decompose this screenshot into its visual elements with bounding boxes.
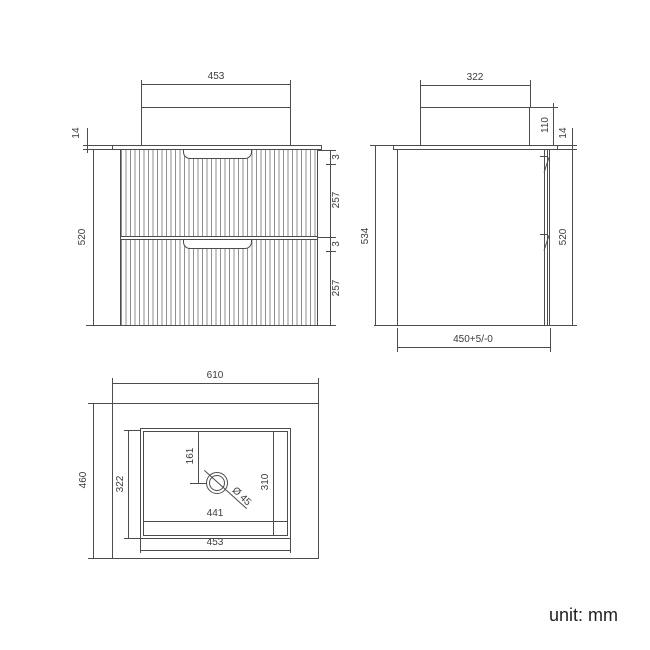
extension-line [86, 325, 120, 326]
extension-line [318, 325, 336, 326]
dim-label-plan-width: 610 [207, 371, 224, 381]
dim-label-plan-depth: 460 [79, 472, 89, 489]
extension-line [374, 325, 397, 326]
extension-line [530, 80, 531, 107]
side-basin [420, 107, 530, 146]
side-cabinet-panel [397, 149, 550, 326]
front-drawer2-handle-recess [183, 240, 252, 249]
unit-label: unit: mm [549, 605, 618, 626]
dim-label-drawer2-height: 257 [332, 280, 342, 297]
dim-line-plan-basin-depth [128, 430, 129, 538]
dim-line-counter-thickness [87, 128, 88, 153]
dim-label-total-height: 534 [361, 228, 371, 245]
extension-line [550, 328, 551, 352]
dim-line-cabinet-height [93, 149, 94, 326]
dim-tick [326, 164, 336, 165]
dim-label-basin-inner-depth: 310 [261, 474, 271, 491]
dim-line-basin-width [141, 84, 291, 85]
back-panel-line [544, 150, 545, 325]
extension-line [370, 145, 393, 146]
dim-line-drain-offset-base [190, 483, 207, 484]
dim-line-drain-offset [198, 431, 199, 483]
extension-line [558, 145, 577, 146]
dim-line-drawer-stack [330, 150, 331, 326]
technical-drawing-sheet: 453 14 520 3 257 3 257 [0, 0, 650, 650]
front-drawer1-handle-recess [183, 150, 252, 159]
extension-line [124, 538, 140, 539]
extension-line [558, 149, 577, 150]
dim-label-cabinet-height: 520 [78, 229, 88, 246]
extension-line [550, 325, 577, 326]
dim-tick [326, 251, 336, 252]
dim-label-gap-mid: 3 [332, 241, 342, 247]
dim-line-plan-depth [93, 403, 94, 558]
extension-line [124, 430, 140, 431]
wall-bracket-tick [540, 156, 548, 157]
wall-bracket-tick [540, 234, 548, 235]
dim-line-basin-inner-width [143, 521, 288, 522]
dim-line-side-heights [572, 128, 573, 325]
extension-line [88, 558, 112, 559]
dim-label-depth: 450+5/-0 [453, 335, 493, 345]
dim-label-plan-basin-depth: 322 [116, 476, 126, 493]
dim-line-basin-inner-depth [273, 431, 274, 535]
extension-line [397, 328, 398, 352]
extension-line [112, 378, 113, 403]
dim-line-total-height [375, 145, 376, 326]
front-basin [141, 107, 291, 146]
dim-label-drain-offset: 161 [186, 448, 196, 465]
dim-label-side-cabinet-height: 520 [559, 229, 569, 246]
dim-label-side-counter-thickness: 14 [559, 127, 569, 138]
dim-line-basin-depth [420, 85, 530, 86]
dim-label-basin-inner-width: 441 [207, 509, 224, 519]
dim-label-drawer1-height: 257 [332, 192, 342, 209]
dim-line-plan-width [112, 383, 319, 384]
dim-label-plan-basin-width: 453 [207, 538, 224, 548]
dim-line-depth [397, 347, 551, 348]
extension-line [318, 237, 336, 238]
dim-label-counter-thickness: 14 [72, 127, 82, 138]
dim-label-gap-top: 3 [332, 154, 342, 160]
dim-line-basin-height [553, 103, 554, 145]
extension-line [88, 403, 112, 404]
dim-label-basin-height: 110 [541, 117, 551, 133]
extension-line [318, 378, 319, 403]
dim-label-basin-width: 453 [208, 72, 225, 82]
extension-line [318, 150, 336, 151]
dim-line-plan-basin-width [140, 550, 291, 551]
dim-label-basin-depth: 322 [467, 73, 484, 83]
